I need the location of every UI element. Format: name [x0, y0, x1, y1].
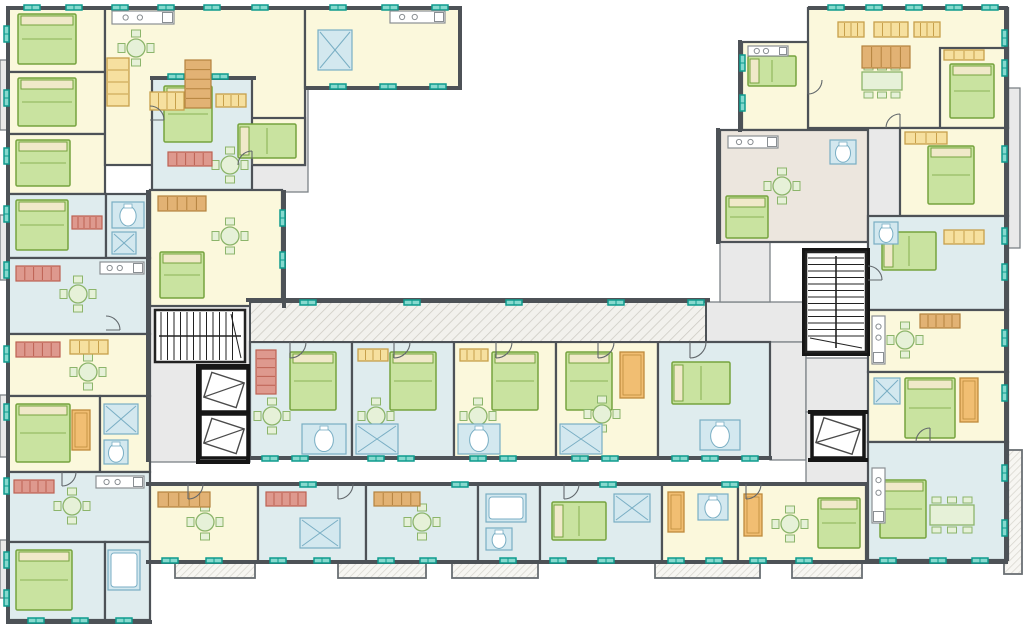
window-icon [4, 26, 9, 42]
bathroom-fixture-icon [830, 140, 856, 164]
rug-icon [168, 152, 212, 166]
wardrobe-icon [874, 22, 908, 37]
wardrobe-icon [216, 94, 246, 107]
window-icon [668, 558, 684, 563]
staircase-icon [155, 310, 245, 362]
window-icon [1002, 264, 1007, 280]
bathroom-fixture-icon [302, 424, 346, 454]
terrace [806, 358, 868, 412]
bed-icon [18, 14, 76, 64]
kitchen-counter-icon [390, 11, 445, 23]
window-icon [212, 74, 228, 79]
window-icon [204, 5, 220, 10]
wall-segment [738, 40, 742, 132]
wardrobe-icon [358, 349, 388, 361]
floor-plan [0, 0, 1024, 631]
rug-icon [158, 196, 206, 211]
kitchen-counter-icon [748, 46, 788, 56]
bed-icon [160, 252, 204, 298]
window-icon [906, 5, 922, 10]
bed-icon [290, 352, 336, 410]
window-icon [398, 456, 414, 461]
window-icon [1002, 228, 1007, 244]
window-icon [796, 558, 812, 563]
terrace [868, 128, 900, 216]
window-icon [280, 252, 285, 268]
bathroom-fixture-icon [108, 550, 140, 590]
window-icon [608, 300, 624, 305]
dresser-icon [668, 492, 684, 532]
rug-icon [14, 480, 54, 493]
bathroom-fixture-icon [700, 420, 740, 450]
wardrobe-icon [944, 230, 984, 244]
window-icon [1002, 30, 1007, 46]
wardrobe-icon [838, 22, 864, 37]
window-icon [404, 300, 420, 305]
rug-icon [266, 492, 306, 506]
kitchen-counter-icon [100, 262, 144, 274]
dining-table-icon [930, 497, 974, 533]
bed-icon [16, 200, 68, 250]
terrace [770, 342, 806, 460]
window-icon [206, 558, 222, 563]
window-icon [4, 346, 9, 362]
bathroom-fixture-icon [112, 202, 144, 228]
corridor [250, 302, 706, 342]
window-icon [420, 558, 436, 563]
window-icon [1002, 385, 1007, 401]
rug-icon [158, 492, 210, 507]
balcony [655, 562, 760, 578]
window-icon [330, 5, 346, 10]
bed-icon [726, 196, 768, 238]
wardrobe-icon [460, 349, 488, 361]
terrace [720, 242, 770, 302]
window-icon [866, 5, 882, 10]
window-icon [158, 5, 174, 10]
window-icon [262, 456, 278, 461]
window-icon [72, 618, 88, 623]
window-icon [672, 456, 688, 461]
window-icon [4, 90, 9, 106]
bathroom-fixture-icon [874, 222, 898, 244]
window-icon [500, 558, 516, 563]
window-icon [930, 558, 946, 563]
wall-segment [282, 190, 286, 308]
bed-icon [16, 550, 72, 610]
window-icon [112, 5, 128, 10]
bathroom-fixture-icon [318, 30, 352, 70]
window-icon [24, 5, 40, 10]
balcony [452, 562, 538, 578]
window-icon [378, 558, 394, 563]
window-icon [162, 558, 178, 563]
wall-segment [458, 6, 462, 90]
balcony [175, 562, 255, 578]
window-icon [292, 456, 308, 461]
window-icon [300, 482, 316, 487]
window-icon [722, 482, 738, 487]
window-icon [432, 5, 448, 10]
bed-icon [390, 352, 436, 410]
window-icon [470, 456, 486, 461]
window-icon [688, 300, 704, 305]
window-icon [4, 478, 9, 494]
window-icon [946, 5, 962, 10]
balcony [338, 562, 426, 578]
window-icon [4, 206, 9, 222]
wall-segment [716, 128, 720, 244]
window-icon [270, 558, 286, 563]
window-icon [4, 148, 9, 164]
wardrobe-icon [70, 340, 108, 354]
bed-icon [950, 64, 994, 118]
balcony [792, 562, 862, 578]
kitchen-counter-icon [112, 11, 174, 24]
elevator-icon [812, 414, 864, 458]
window-icon [1002, 330, 1007, 346]
wall-segment [146, 482, 868, 486]
kitchen-counter-icon [96, 476, 144, 488]
window-icon [1002, 60, 1007, 76]
window-icon [4, 590, 9, 606]
window-icon [602, 456, 618, 461]
elevator-icon [200, 414, 248, 458]
window-icon [828, 5, 844, 10]
window-icon [702, 456, 718, 461]
terrace [706, 302, 806, 342]
bed-icon [748, 56, 796, 86]
dresser-icon [960, 378, 978, 422]
bathroom-fixture-icon [356, 424, 398, 454]
window-icon [382, 5, 398, 10]
window-icon [66, 5, 82, 10]
bed-icon [818, 498, 860, 548]
bathroom-fixture-icon [874, 378, 900, 404]
dresser-icon [72, 410, 90, 450]
bed-icon [238, 124, 296, 158]
window-icon [430, 84, 446, 89]
window-icon [330, 84, 346, 89]
window-icon [972, 558, 988, 563]
rug-icon [862, 46, 910, 68]
window-icon [500, 456, 516, 461]
bathroom-fixture-icon [104, 404, 138, 434]
bathroom-fixture-icon [112, 232, 136, 254]
dresser-icon [744, 494, 762, 536]
wardrobe-icon [107, 58, 129, 106]
bed-icon [492, 352, 538, 410]
wardrobe-icon [944, 50, 984, 60]
bathroom-fixture-icon [486, 494, 526, 522]
wardrobe-icon [914, 22, 940, 37]
window-icon [600, 482, 616, 487]
bed-icon [672, 362, 730, 404]
staircase-icon [806, 252, 866, 352]
window-icon [452, 482, 468, 487]
kitchen-counter-icon [872, 468, 885, 523]
window-icon [550, 558, 566, 563]
window-icon [742, 456, 758, 461]
bathroom-fixture-icon [560, 424, 602, 454]
window-icon [4, 552, 9, 568]
rug-icon [920, 314, 960, 328]
bathroom-fixture-icon [698, 494, 728, 520]
dining-table-icon [862, 64, 902, 98]
bathroom-fixture-icon [486, 528, 512, 550]
kitchen-counter-icon [728, 136, 778, 148]
window-icon [368, 456, 384, 461]
window-icon [4, 262, 9, 278]
terrace [1008, 88, 1020, 248]
window-icon [706, 558, 722, 563]
window-icon [300, 300, 316, 305]
window-icon [598, 558, 614, 563]
core-wall-segment [196, 460, 250, 464]
bed-icon [16, 404, 70, 462]
window-icon [880, 558, 896, 563]
bathroom-fixture-icon [458, 424, 500, 454]
rug-icon [185, 60, 211, 108]
window-icon [1002, 520, 1007, 536]
floor-plan-canvas [0, 0, 1024, 631]
elevator-icon [200, 368, 248, 412]
bed-icon [18, 78, 76, 126]
bathroom-fixture-icon [104, 440, 128, 464]
window-icon [280, 210, 285, 226]
wall-segment [146, 190, 150, 462]
window-icon [116, 618, 132, 623]
window-icon [380, 84, 396, 89]
window-icon [1002, 465, 1007, 481]
bed-icon [16, 140, 70, 186]
window-icon [740, 95, 745, 111]
wardrobe-icon [905, 132, 947, 144]
window-icon [740, 55, 745, 71]
bed-icon [928, 146, 974, 204]
window-icon [252, 5, 268, 10]
bed-icon [552, 502, 606, 540]
window-icon [750, 558, 766, 563]
window-icon [28, 618, 44, 623]
bed-icon [880, 480, 926, 538]
rug-icon [16, 266, 60, 281]
bathroom-fixture-icon [614, 494, 650, 522]
dresser-icon [620, 352, 644, 398]
window-icon [572, 456, 588, 461]
bathroom-fixture-icon [300, 518, 340, 548]
rug-icon [16, 342, 60, 357]
rug-icon [72, 216, 102, 229]
window-icon [982, 5, 998, 10]
rug-icon [374, 492, 420, 506]
window-icon [4, 404, 9, 420]
kitchen-counter-icon [872, 316, 885, 364]
rug-icon [256, 350, 276, 394]
window-icon [506, 300, 522, 305]
window-icon [1002, 146, 1007, 162]
window-icon [314, 558, 330, 563]
window-icon [168, 74, 184, 79]
